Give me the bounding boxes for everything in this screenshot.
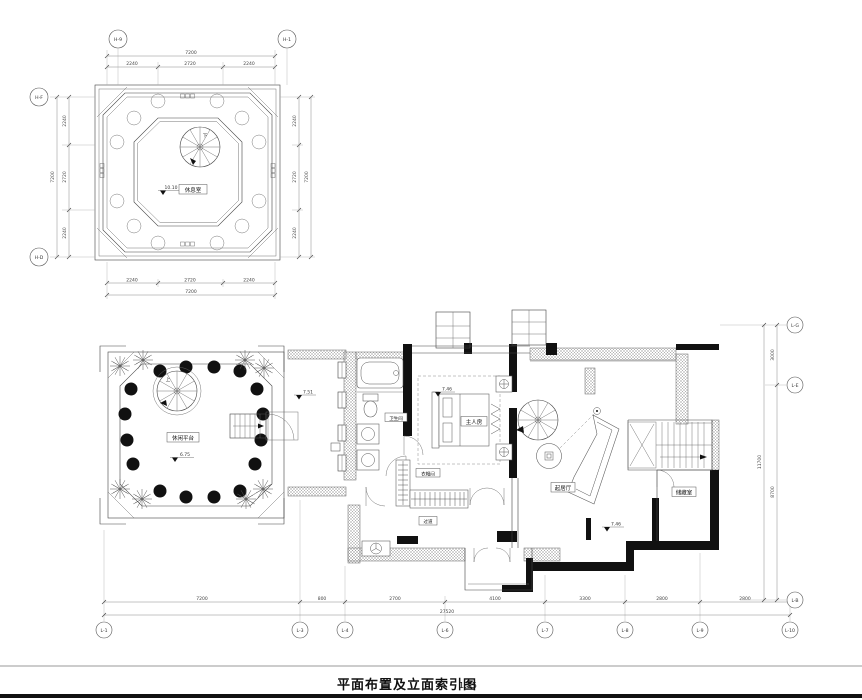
bathroom: 卫生间 bbox=[357, 358, 407, 476]
svg-text:L-3: L-3 bbox=[296, 628, 303, 634]
door-arc bbox=[657, 470, 674, 487]
svg-text:L-9: L-9 bbox=[696, 628, 703, 634]
spiral-staircase bbox=[518, 400, 558, 440]
svg-text:L-6: L-6 bbox=[441, 628, 448, 634]
storage-room: 储藏室 bbox=[657, 470, 696, 497]
svg-text:7.46: 7.46 bbox=[611, 522, 621, 528]
svg-text:H-1: H-1 bbox=[283, 37, 291, 43]
svg-text:7200: 7200 bbox=[185, 50, 197, 56]
grid-dimensions-right: 3000 8700 11700 L-G L-E L-B bbox=[720, 317, 803, 608]
double-door-arc bbox=[470, 488, 504, 505]
nightstand bbox=[496, 376, 512, 392]
sheet-scale: 1:75 bbox=[459, 681, 477, 690]
toilet bbox=[363, 394, 378, 417]
stair-direction-label: 上 bbox=[166, 376, 171, 383]
spiral-staircase bbox=[157, 371, 197, 411]
svg-text:2700: 2700 bbox=[389, 596, 401, 602]
svg-text:3300: 3300 bbox=[579, 596, 591, 602]
terrace-door bbox=[266, 412, 298, 440]
window bbox=[512, 310, 546, 345]
room-label-living: 起居厅 bbox=[555, 485, 572, 492]
bathtub bbox=[357, 358, 403, 388]
stair-direction-label: 下 bbox=[203, 133, 208, 139]
nightstand bbox=[496, 444, 512, 460]
level-marker-terrace: 7.51 bbox=[294, 390, 316, 400]
sink bbox=[357, 424, 379, 444]
svg-text:L-8: L-8 bbox=[621, 628, 628, 634]
svg-text:2240: 2240 bbox=[292, 227, 298, 239]
svg-text:7200: 7200 bbox=[304, 171, 310, 183]
svg-text:3000: 3000 bbox=[770, 349, 776, 361]
svg-text:7200: 7200 bbox=[185, 289, 197, 295]
svg-text:7.46: 7.46 bbox=[442, 387, 452, 393]
corner-trees bbox=[110, 350, 274, 509]
svg-text:27520: 27520 bbox=[440, 609, 454, 615]
roof-columns bbox=[110, 94, 266, 250]
stair-direction-arrow bbox=[700, 455, 707, 460]
room-label-storage: 储藏室 bbox=[676, 489, 693, 497]
svg-text:4100: 4100 bbox=[489, 596, 501, 602]
spiral-staircase bbox=[180, 127, 220, 167]
door-arc bbox=[366, 487, 385, 506]
svg-text:2800: 2800 bbox=[656, 596, 668, 602]
svg-text:2240: 2240 bbox=[62, 227, 68, 239]
drawing-sheet: 下 10.10 休息室 7200 2240 2720 2240 H-9 H-1 … bbox=[0, 0, 862, 700]
svg-text:L-4: L-4 bbox=[341, 628, 348, 634]
site-plan: 上 6.75 休闲平台 bbox=[100, 346, 298, 524]
svg-text:2240: 2240 bbox=[292, 115, 298, 127]
svg-text:L-1: L-1 bbox=[100, 628, 107, 634]
svg-text:L-B: L-B bbox=[791, 598, 798, 604]
svg-text:11700: 11700 bbox=[757, 455, 763, 469]
plan-canvas: 下 10.10 休息室 7200 2240 2720 2240 H-9 H-1 … bbox=[0, 0, 862, 700]
double-door-arc bbox=[474, 548, 510, 562]
entry-porch bbox=[465, 548, 532, 590]
ceiling-fan-unit bbox=[362, 541, 390, 556]
title-rule bbox=[0, 694, 862, 698]
grid-dimensions-bottom: 7200 800 2700 4100 3300 2800 2800 27520 … bbox=[96, 500, 798, 638]
sheet-title: 平面布置及立面索引图 bbox=[337, 677, 477, 693]
svg-text:L-7: L-7 bbox=[541, 628, 548, 634]
bed-runner bbox=[491, 404, 500, 434]
svg-text:10.10: 10.10 bbox=[165, 185, 178, 191]
floor-plan: 卫生间 bbox=[331, 310, 719, 592]
room-label-roof: 休息室 bbox=[185, 186, 202, 194]
room-label-corridor: 过道 bbox=[424, 518, 433, 525]
level-marker-living: 7.46 bbox=[602, 522, 624, 532]
svg-text:2240: 2240 bbox=[243, 278, 255, 284]
fixture-box bbox=[331, 443, 340, 451]
svg-text:6.75: 6.75 bbox=[180, 452, 190, 458]
svg-text:L-E: L-E bbox=[791, 383, 798, 389]
svg-text:7.51: 7.51 bbox=[303, 390, 313, 396]
round-table bbox=[537, 444, 562, 469]
room-label-cloakroom: 衣帽间 bbox=[421, 470, 435, 477]
svg-text:2240: 2240 bbox=[62, 115, 68, 127]
svg-text:2240: 2240 bbox=[126, 61, 138, 67]
title-block: 平面布置及立面索引图 1:75 bbox=[0, 666, 862, 698]
svg-text:7200: 7200 bbox=[196, 596, 208, 602]
svg-text:2240: 2240 bbox=[243, 61, 255, 67]
svg-text:H-D: H-D bbox=[35, 255, 44, 261]
svg-text:2720: 2720 bbox=[62, 171, 68, 183]
room-label-site: 休闲平台 bbox=[172, 434, 195, 442]
window bbox=[436, 312, 470, 348]
svg-text:2720: 2720 bbox=[184, 278, 196, 284]
svg-text:L-G: L-G bbox=[791, 323, 799, 329]
counter bbox=[568, 415, 619, 504]
master-bedroom: 7.46 主人房 bbox=[404, 376, 512, 464]
svg-text:L-10: L-10 bbox=[785, 628, 795, 634]
svg-text:8700: 8700 bbox=[770, 486, 776, 498]
straight-staircase bbox=[628, 422, 712, 468]
svg-text:800: 800 bbox=[318, 596, 327, 602]
svg-text:2800: 2800 bbox=[739, 596, 751, 602]
terrace-link: 7.51 bbox=[288, 350, 346, 496]
svg-text:7200: 7200 bbox=[50, 171, 56, 183]
svg-text:2240: 2240 bbox=[126, 278, 138, 284]
level-marker-roof: 10.10 bbox=[158, 185, 180, 195]
svg-text:H-9: H-9 bbox=[114, 37, 122, 43]
svg-text:H-F: H-F bbox=[35, 95, 43, 101]
roof-plan: 下 10.10 休息室 bbox=[95, 85, 280, 260]
level-marker-site: 6.75 bbox=[170, 452, 194, 462]
svg-text:2720: 2720 bbox=[292, 171, 298, 183]
door-arc bbox=[404, 436, 423, 455]
room-label-bathroom: 卫生间 bbox=[389, 415, 403, 422]
sink bbox=[357, 450, 379, 470]
svg-text:2720: 2720 bbox=[184, 61, 196, 67]
room-label-bedroom: 主人房 bbox=[466, 418, 483, 426]
